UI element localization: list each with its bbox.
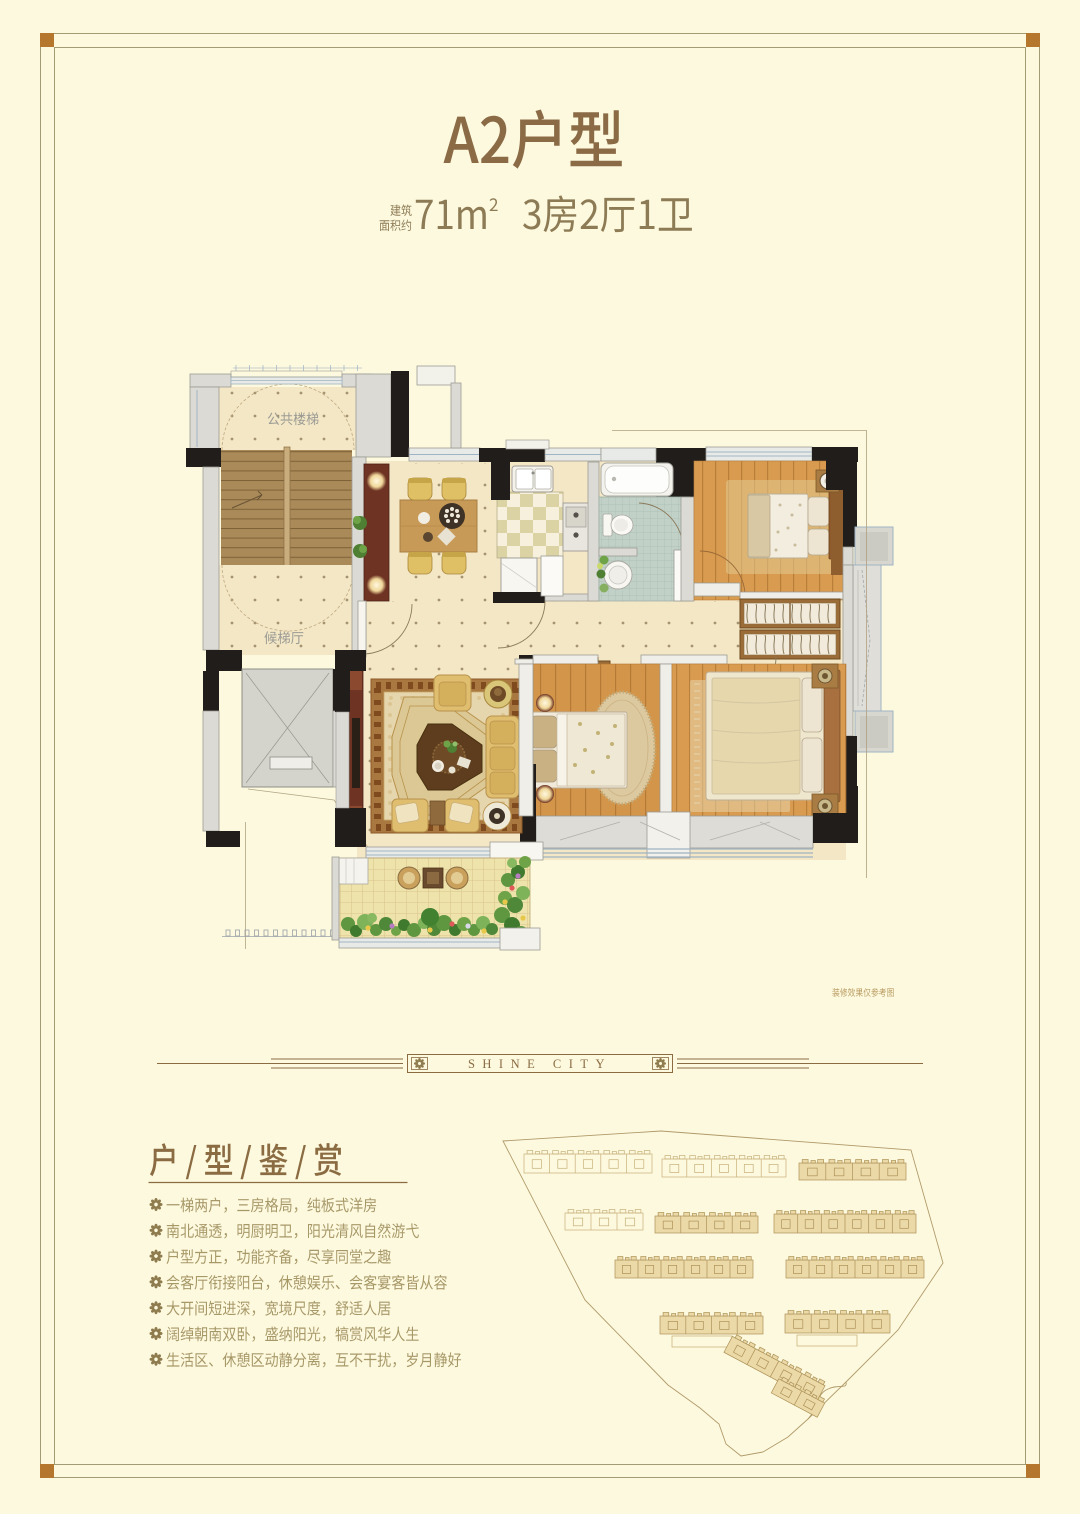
svg-text:SHINE CITY: SHINE CITY bbox=[468, 1057, 612, 1071]
